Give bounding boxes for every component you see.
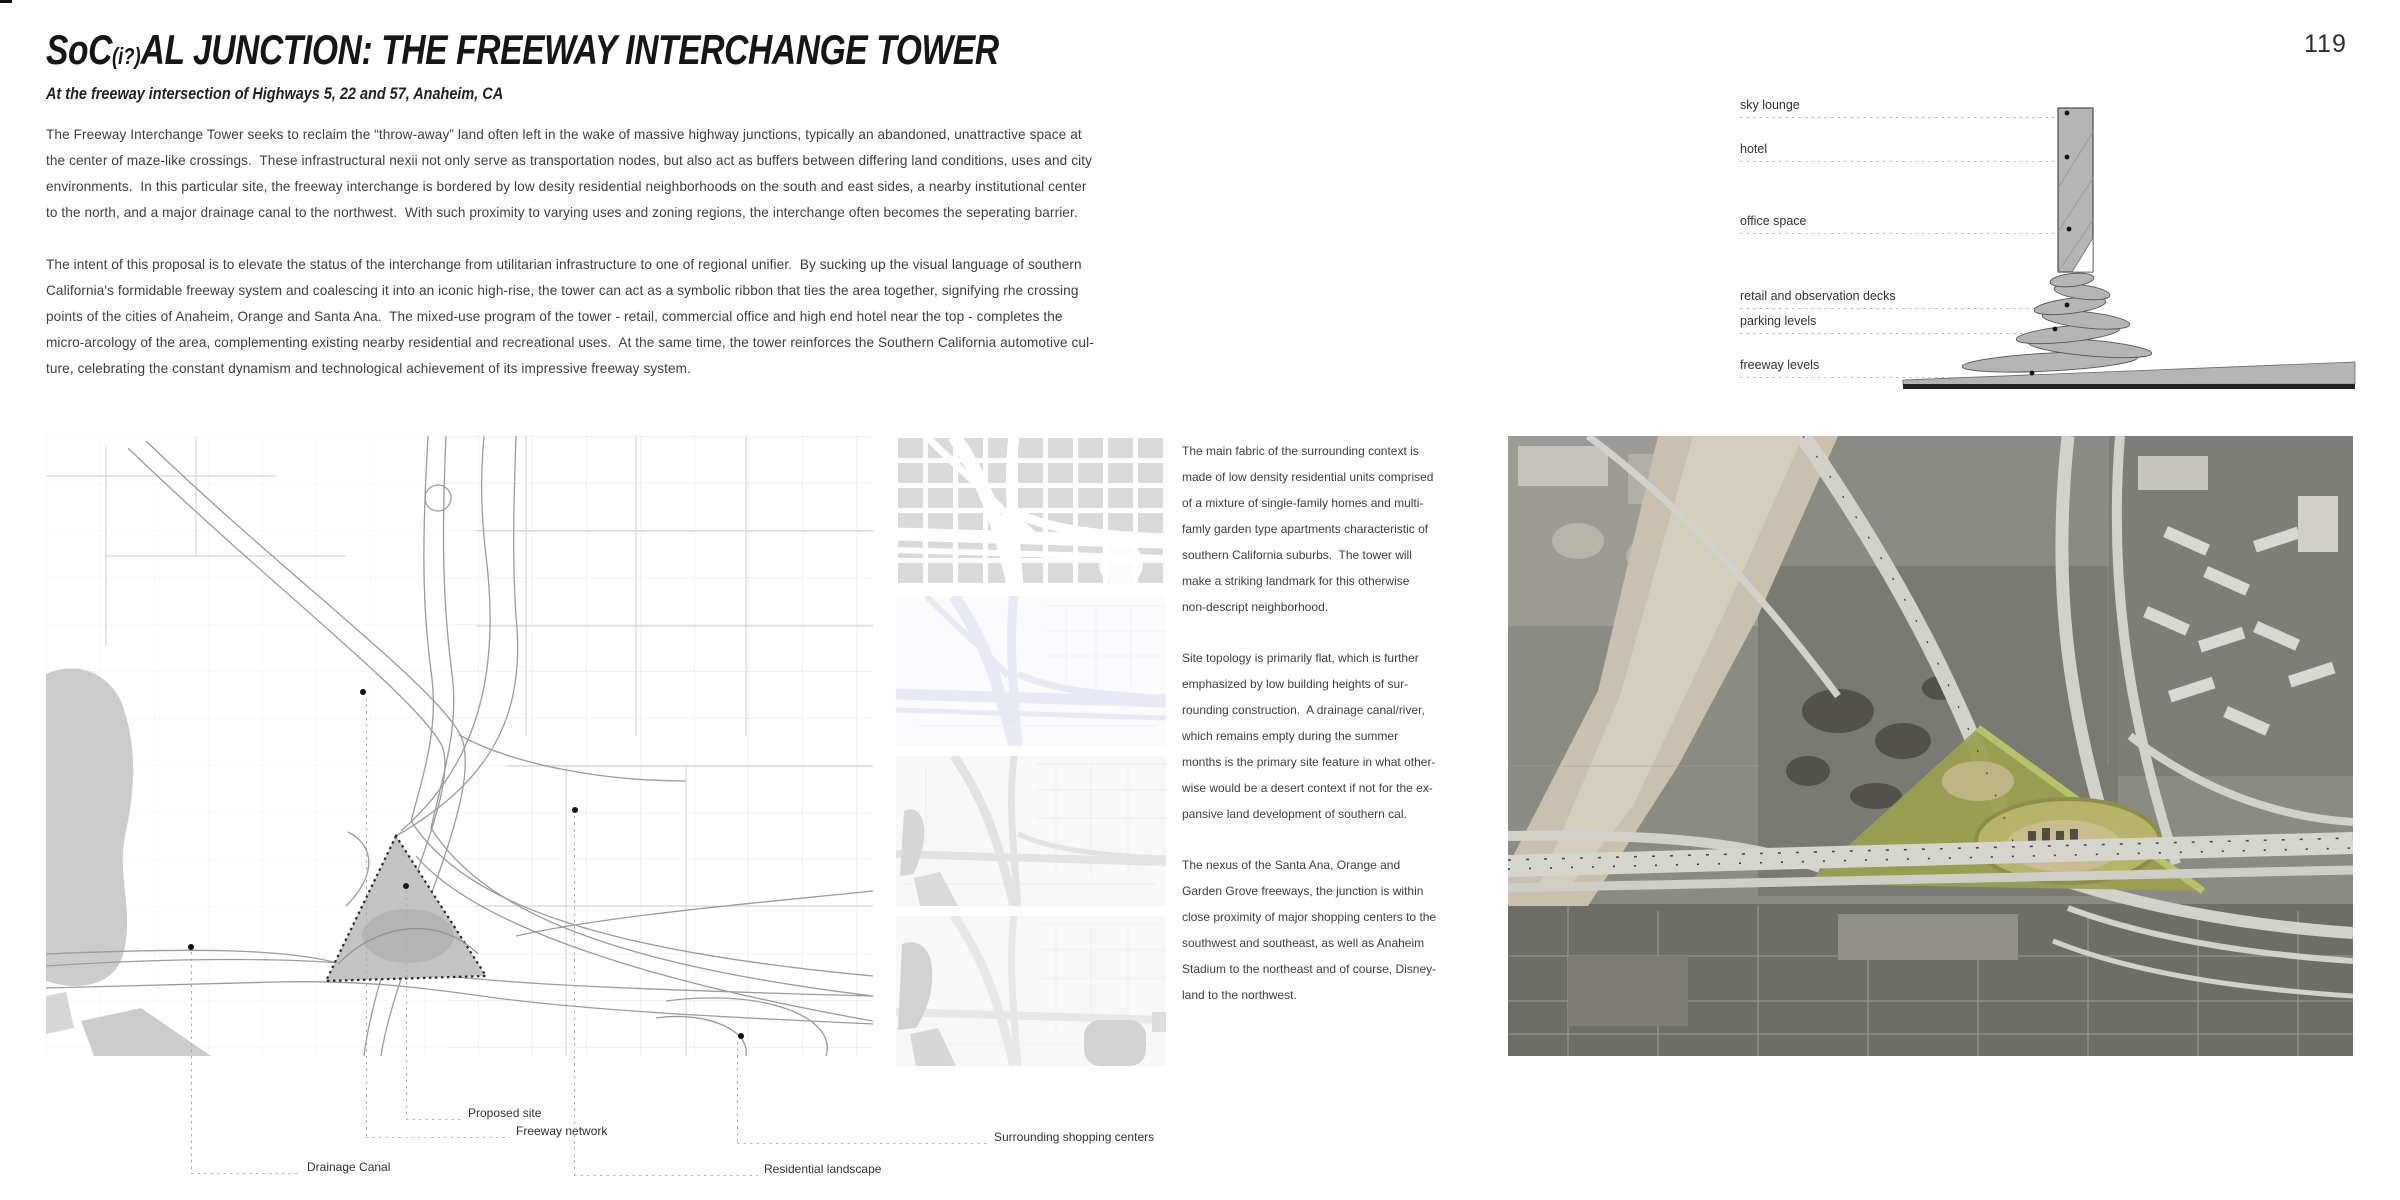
legend-freeway-network: Freeway network: [516, 1124, 607, 1138]
tower-section-diagram: [1900, 90, 2370, 400]
page-number: 119: [2304, 30, 2347, 59]
thumbnail-freeway-network: [896, 596, 1166, 746]
leader-freeway-network-v: [366, 698, 367, 1137]
leader-shopping-centers-h: [737, 1143, 988, 1144]
page-corner-mark: [0, 0, 12, 3]
title-suffix: AL JUNCTION: THE FREEWAY INTERCHANGE TOW…: [141, 26, 999, 73]
thumbnail-shopping-centers: [896, 916, 1166, 1066]
tower-label-sky-lounge: sky lounge: [1740, 98, 1800, 112]
context-note-3: The nexus of the Santa Ana, Orange and G…: [1182, 852, 1492, 1008]
leader-residential-landscape-h: [574, 1175, 758, 1176]
tower-label-hotel: hotel: [1740, 142, 1767, 156]
leader-drainage-canal-h: [191, 1173, 300, 1174]
leader-drainage-canal-v: [191, 952, 192, 1173]
title-prefix: SoC: [46, 26, 112, 73]
leader-proposed-site-h: [406, 1119, 462, 1120]
intro-paragraph-1: The Freeway Interchange Tower seeks to r…: [46, 122, 1206, 226]
tower-label-parking: parking levels: [1740, 314, 1816, 328]
leader-freeway-network-h: [366, 1137, 510, 1138]
intro-paragraph-2: The intent of this proposal is to elevat…: [46, 252, 1206, 382]
aerial-photo-interchange: [1508, 436, 2353, 1056]
site-plan-drawing: [46, 436, 873, 1056]
tower-label-freeway: freeway levels: [1740, 358, 1819, 372]
thumbnail-residential-figure-ground: [896, 436, 1166, 586]
leader-proposed-site-v: [406, 891, 407, 1120]
page-subtitle: At the freeway intersection of Highways …: [46, 84, 503, 104]
tower-label-office-space: office space: [1740, 214, 1806, 228]
thumbnail-drainage-canal: [896, 756, 1166, 906]
legend-residential-landscape: Residential landscape: [764, 1162, 881, 1176]
legend-proposed-site: Proposed site: [468, 1106, 541, 1120]
context-note-2: Site topology is primarily flat, which i…: [1182, 645, 1492, 827]
legend-shopping-centers: Surrounding shopping centers: [994, 1130, 1154, 1144]
leader-residential-landscape-v: [574, 816, 575, 1175]
title-parenthetical: (i?): [112, 43, 141, 69]
legend-drainage-canal: Drainage Canal: [307, 1160, 390, 1174]
tower-label-retail-decks: retail and observation decks: [1740, 289, 1896, 303]
portfolio-page: SoC(i?)AL JUNCTION: THE FREEWAY INTERCHA…: [0, 0, 2400, 1200]
context-note-1: The main fabric of the surrounding conte…: [1182, 438, 1492, 620]
leader-shopping-centers-v: [737, 1042, 738, 1143]
page-title: SoC(i?)AL JUNCTION: THE FREEWAY INTERCHA…: [46, 26, 999, 74]
